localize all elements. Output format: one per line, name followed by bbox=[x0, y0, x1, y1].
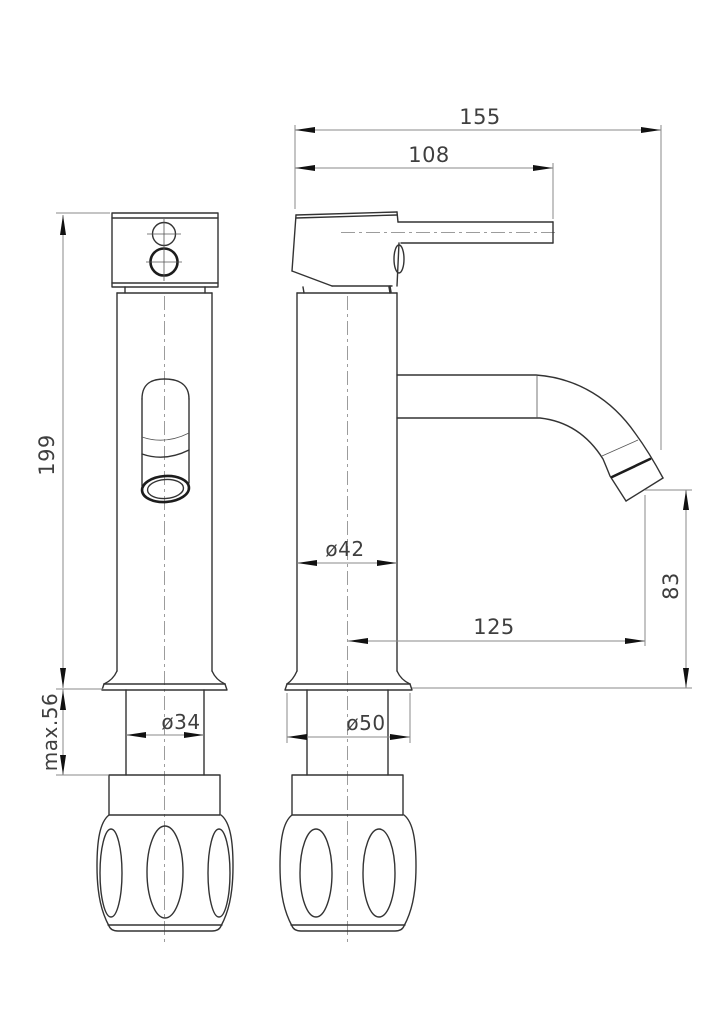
dim-label-max56: max.56 bbox=[38, 693, 62, 771]
side-base-flare bbox=[285, 671, 412, 690]
dimensions: 155 108 199 max.56 bbox=[35, 105, 692, 775]
front-head bbox=[112, 213, 218, 293]
dimension-spout-height: 83 bbox=[412, 490, 692, 688]
dim-label-155: 155 bbox=[459, 105, 501, 129]
dim-label-d34: ø34 bbox=[161, 710, 200, 734]
aerator-ring bbox=[147, 478, 184, 499]
dimension-body-diameter: ø42 bbox=[297, 537, 397, 566]
dim-label-d50: ø50 bbox=[346, 711, 385, 735]
dim-label-108: 108 bbox=[408, 143, 450, 167]
spout-outlet bbox=[141, 474, 190, 503]
dim-label-125: 125 bbox=[473, 615, 515, 639]
dimension-max-deck-thickness: max.56 bbox=[38, 689, 108, 775]
side-spout bbox=[397, 375, 663, 501]
drawing-canvas: 155 108 199 max.56 bbox=[0, 0, 723, 1024]
dimension-base-diameter: ø50 bbox=[287, 693, 410, 743]
dim-label-83: 83 bbox=[659, 572, 683, 600]
side-view bbox=[280, 212, 663, 942]
side-head bbox=[292, 212, 404, 292]
aerator-line bbox=[612, 459, 650, 477]
dimension-shank-diameter: ø34 bbox=[126, 710, 204, 738]
dim-label-199: 199 bbox=[35, 434, 59, 476]
dimension-body-height: 199 bbox=[35, 213, 110, 689]
dimension-total-reach: 155 bbox=[295, 105, 661, 450]
technical-drawing: 155 108 199 max.56 bbox=[0, 0, 723, 1024]
front-spout bbox=[141, 379, 190, 504]
front-view bbox=[97, 213, 233, 942]
dimension-spout-reach: 125 bbox=[348, 495, 645, 646]
dimension-handle-reach: 108 bbox=[295, 143, 553, 219]
dim-label-d42: ø42 bbox=[325, 537, 364, 561]
